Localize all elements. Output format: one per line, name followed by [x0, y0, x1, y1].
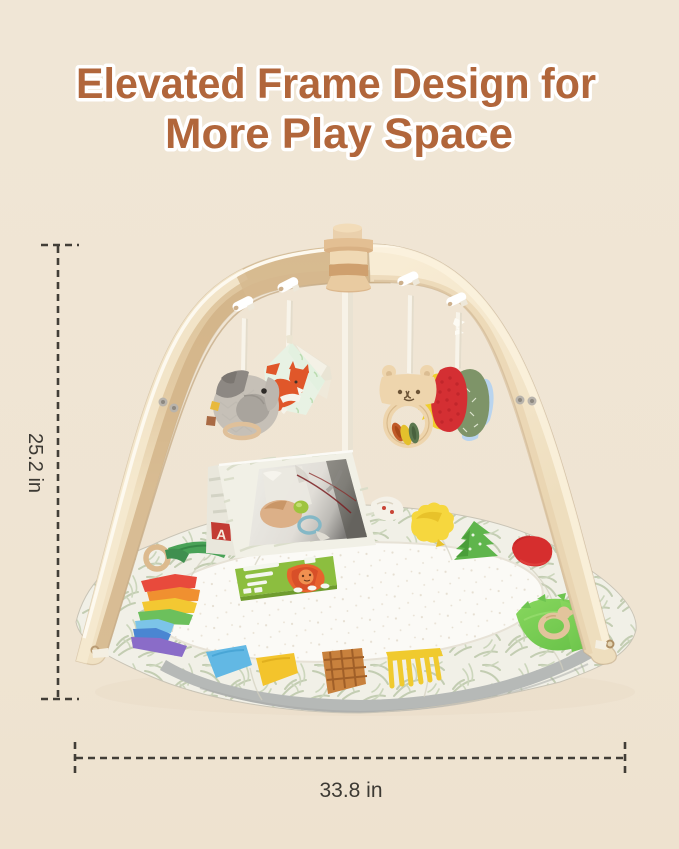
svg-text:33.8 in: 33.8 in: [319, 779, 382, 802]
svg-text:A: A: [216, 526, 227, 543]
svg-text:25.2 in: 25.2 in: [24, 433, 46, 493]
svg-text:More Play Space: More Play Space: [165, 110, 513, 158]
svg-text:Elevated Frame Design for: Elevated Frame Design for: [76, 60, 596, 108]
